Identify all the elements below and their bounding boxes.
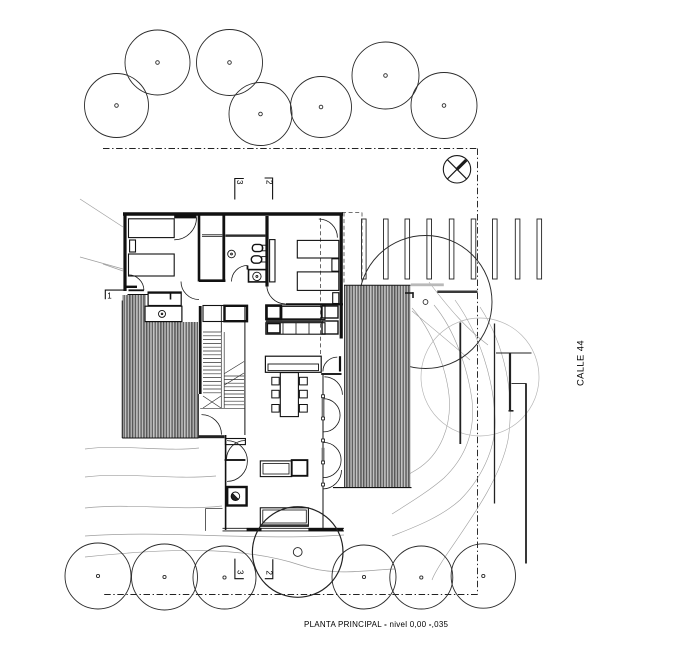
svg-text:3: 3 <box>235 180 244 185</box>
svg-text:CALLE 44: CALLE 44 <box>575 340 586 386</box>
svg-text:PLANTA PRINCIPAL - nivel 0,00: PLANTA PRINCIPAL - nivel 0,00 -,035 <box>304 620 449 629</box>
svg-text:1: 1 <box>107 292 112 301</box>
svg-text:2: 2 <box>264 180 273 185</box>
svg-text:2: 2 <box>265 571 274 576</box>
svg-text:3: 3 <box>235 570 244 575</box>
